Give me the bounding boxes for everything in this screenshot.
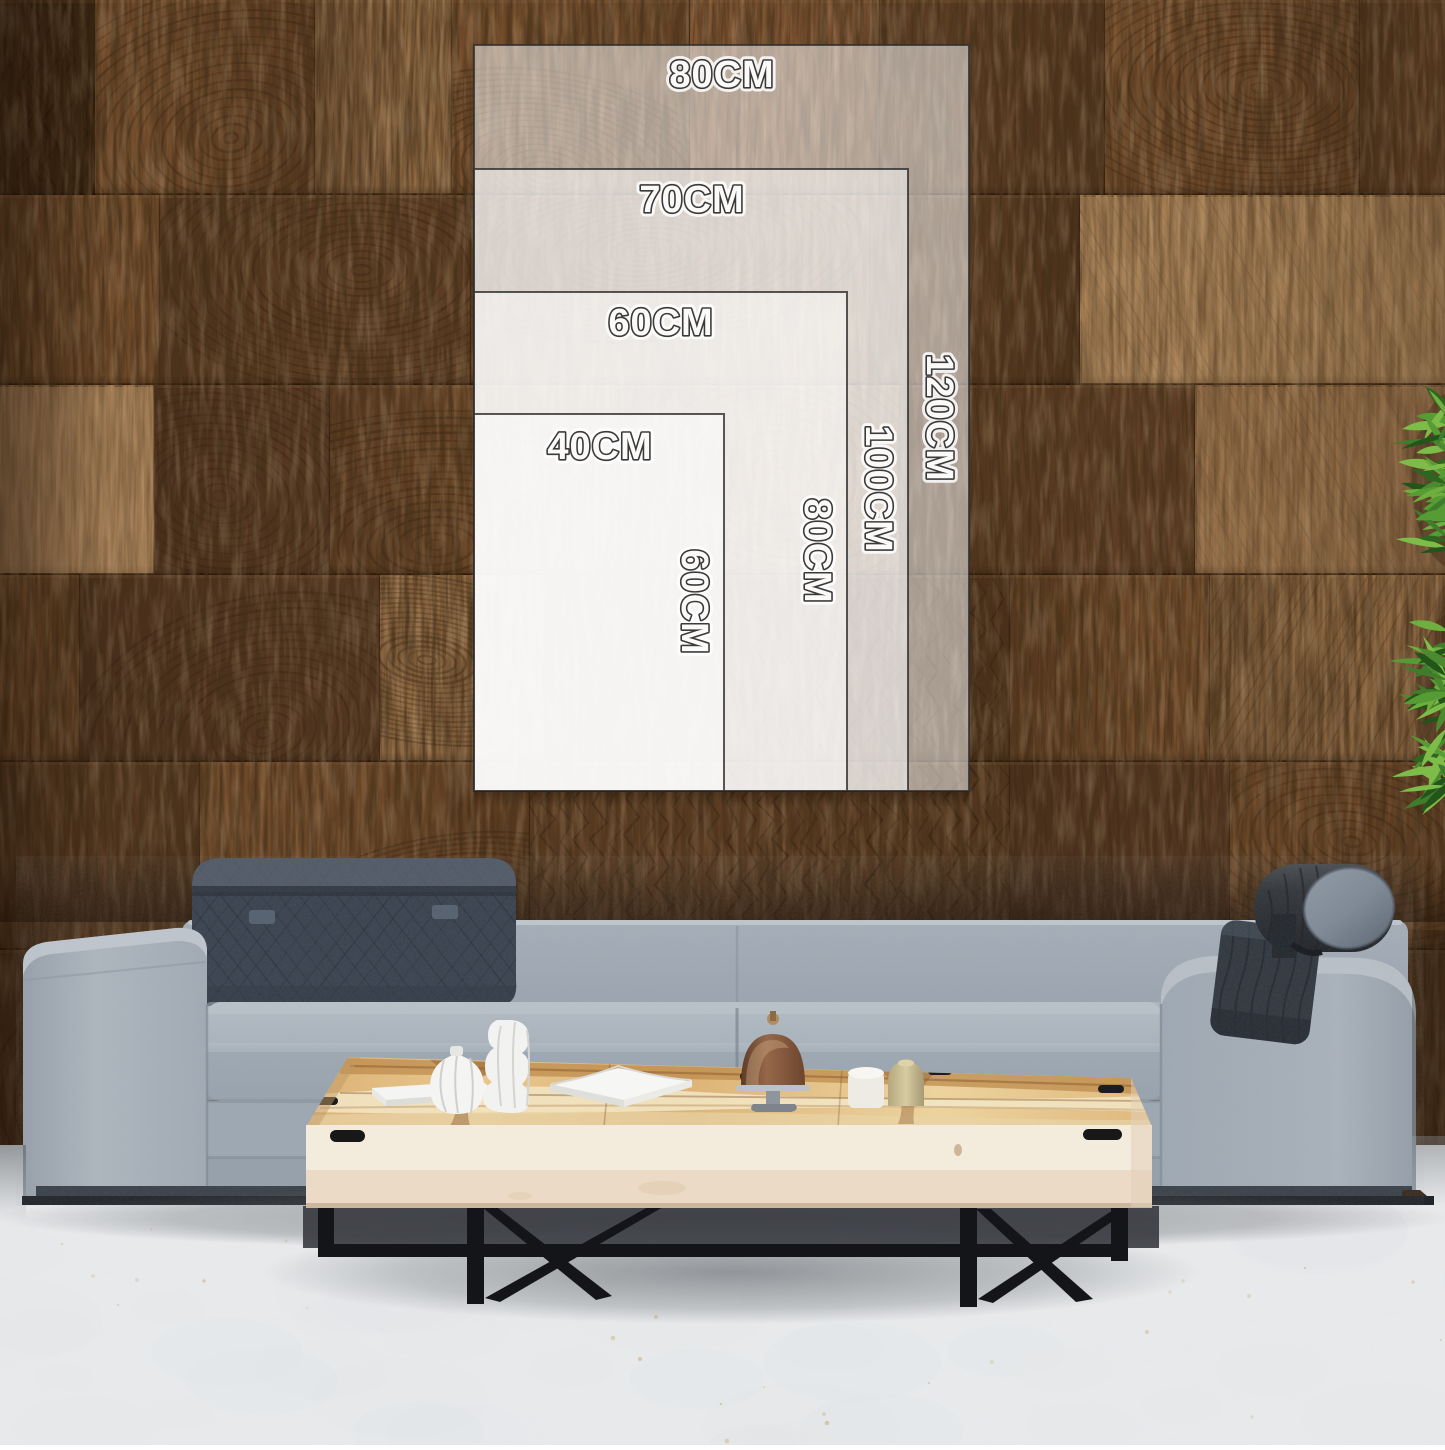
svg-text:60CM: 60CM (673, 549, 715, 654)
svg-text:80CM: 80CM (669, 54, 774, 96)
svg-text:70CM: 70CM (639, 179, 744, 221)
svg-text:60CM: 60CM (608, 302, 713, 344)
svg-text:40CM: 40CM (547, 426, 652, 468)
svg-text:100CM: 100CM (857, 425, 899, 553)
svg-text:120CM: 120CM (918, 354, 960, 482)
svg-text:80CM: 80CM (796, 498, 838, 603)
